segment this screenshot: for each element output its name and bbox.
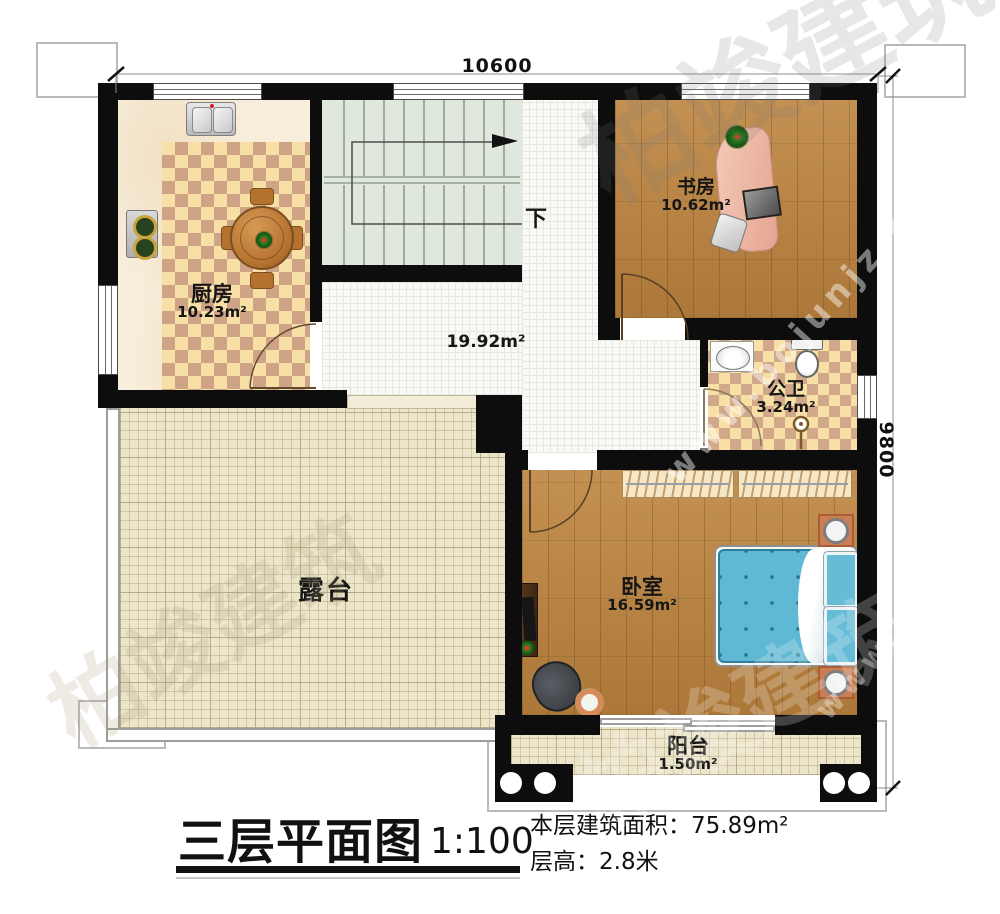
balcony-name: 阳台 — [658, 735, 717, 757]
dimension-height-label: 9800 — [875, 422, 897, 479]
terrace-label: 露台 — [298, 578, 354, 605]
bedroom-name: 卧室 — [607, 576, 677, 598]
bedroom-area: 16.59m² — [607, 598, 677, 614]
bedroom-door-arc — [530, 470, 592, 532]
stair-landing-line — [324, 177, 520, 183]
floor-height-line: 层高：2.8米 — [530, 842, 659, 876]
plan-title: 三层平面图 — [178, 802, 423, 872]
bathroom-door-arc — [704, 389, 761, 446]
kitchen-door-arc — [250, 324, 316, 388]
bedroom-label: 卧室 16.59m² — [607, 576, 677, 614]
study-name: 书房 — [661, 178, 731, 198]
stairs-down-label: 下 — [525, 208, 547, 231]
shower-head-dot — [799, 422, 803, 426]
hall-area-label: 19.92m² — [447, 334, 526, 352]
kitchen-area: 10.23m² — [177, 305, 247, 321]
floor-plan-page: 10600 9800 厨房 10.23m² 书房 10.62m² 公卫 3.24… — [0, 0, 1000, 914]
plan-linework — [0, 0, 1000, 914]
balcony-area: 1.50m² — [658, 757, 717, 773]
balcony-label: 阳台 1.50m² — [658, 735, 717, 773]
bathroom-area: 3.24m² — [756, 400, 815, 416]
hall-area: 19.92m² — [447, 334, 526, 352]
study-door-arc — [622, 274, 688, 340]
kitchen-name: 厨房 — [177, 283, 247, 305]
bathroom-label: 公卫 3.24m² — [756, 380, 815, 416]
study-label: 书房 10.62m² — [661, 178, 731, 214]
stair-direction-arrow-icon — [492, 134, 518, 148]
study-area: 10.62m² — [661, 198, 731, 214]
title-underline-thin — [176, 877, 520, 879]
floor-area-line: 本层建筑面积：75.89m² — [530, 806, 788, 840]
dimension-width-label: 10600 — [461, 55, 532, 77]
plan-scale: 1:100 — [430, 821, 534, 862]
terrace-name: 露台 — [298, 578, 354, 605]
title-underline-thick — [176, 866, 520, 873]
kitchen-label: 厨房 10.23m² — [177, 283, 247, 321]
bathroom-name: 公卫 — [756, 380, 815, 400]
